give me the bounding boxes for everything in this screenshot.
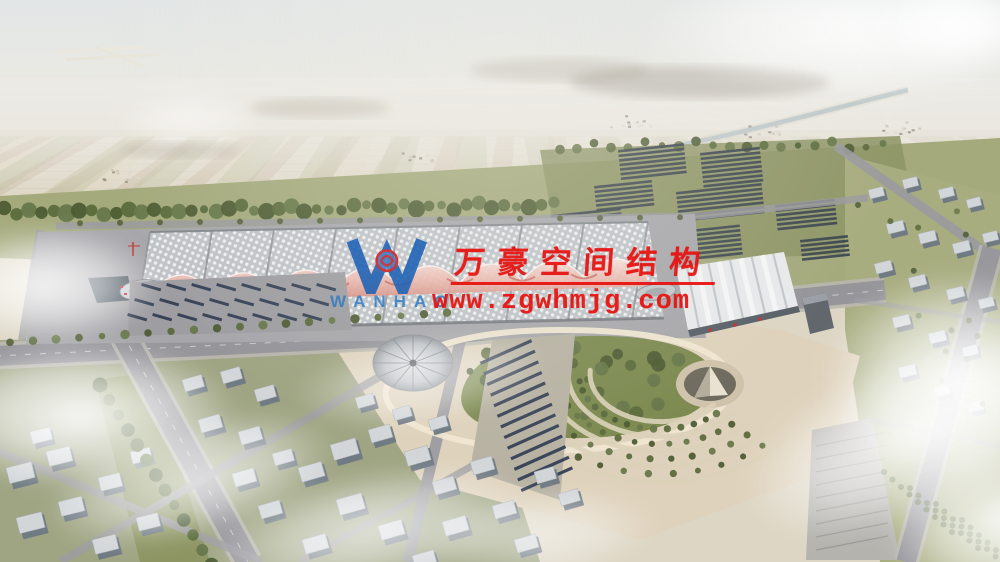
cone-crater-structure: [676, 360, 744, 408]
watermark-website: www.zgwhmjg.com: [432, 287, 690, 317]
watermark-company-name: 万豪空间结构: [451, 246, 718, 285]
logo-red-emblem: [377, 251, 397, 271]
aerial-rendering-canvas: WANHAO 万豪空间结构 www.zgwhmjg.com: [0, 0, 1000, 562]
watermark-logo: [328, 236, 450, 294]
cloud: [120, 90, 260, 150]
airport-runways: [58, 45, 158, 67]
